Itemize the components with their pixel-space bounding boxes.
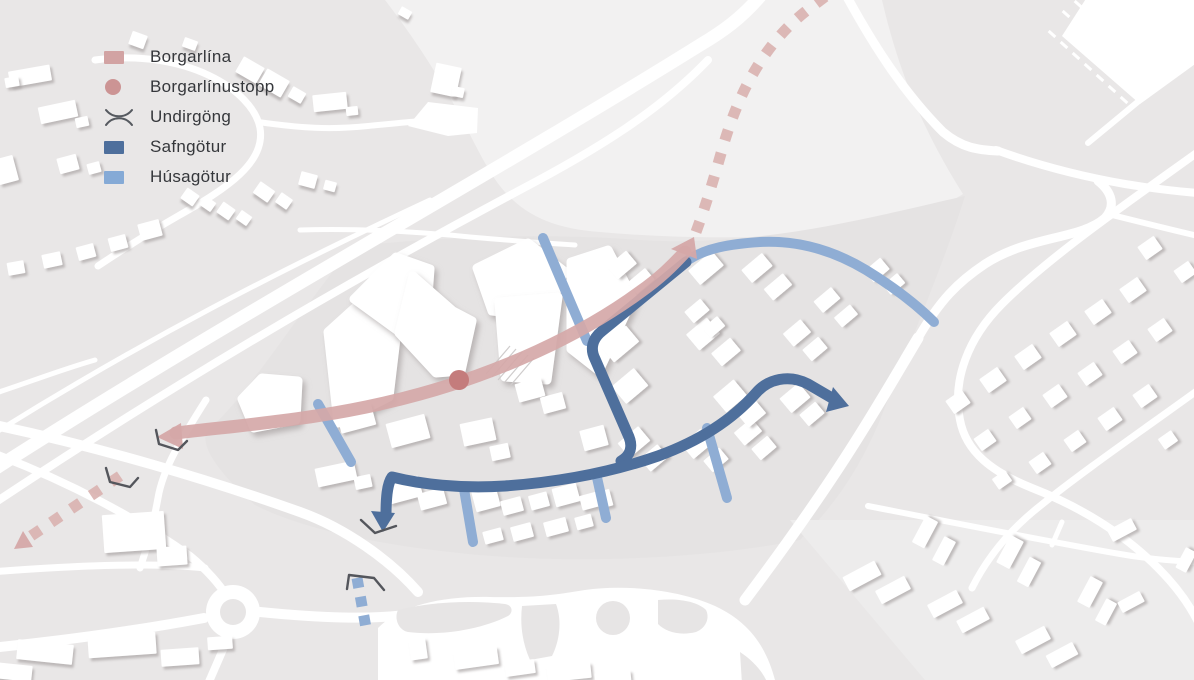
- parking-tick: [1096, 74, 1105, 82]
- building-footprint: [323, 180, 337, 193]
- tunnel-portal-curve: [106, 110, 132, 116]
- roundabout-west-island: [220, 599, 246, 625]
- building-footprint: [408, 637, 428, 660]
- east-arm: [260, 612, 415, 618]
- building-footprint: [1112, 340, 1138, 365]
- collector-street-swatch: [104, 141, 138, 154]
- building-footprint: [288, 86, 307, 104]
- parking-tick: [1120, 96, 1129, 104]
- building-footprint: [1137, 236, 1163, 261]
- building-footprint: [1014, 344, 1042, 371]
- legend-item-undirgong: Undirgöng: [104, 102, 275, 132]
- borgarlina-stop: [449, 370, 469, 390]
- building-footprint: [137, 219, 163, 241]
- building-footprint: [1042, 384, 1068, 409]
- gore-merge: [0, 360, 95, 395]
- building-footprint: [156, 545, 187, 566]
- tunnel-portal-curve: [106, 118, 132, 125]
- building-footprint: [0, 662, 33, 680]
- building-footprint: [298, 171, 318, 189]
- building-footprint: [160, 647, 199, 667]
- legend-item-borgarlinustopp: Borgarlínustopp: [104, 72, 275, 102]
- parking-tick: [1072, 52, 1081, 60]
- northeast-branch: [1108, 214, 1194, 236]
- building-footprint: [1173, 261, 1194, 284]
- building-footprint: [1077, 362, 1103, 387]
- large-parking-building: [1062, 0, 1194, 104]
- building-footprint: [1147, 318, 1173, 343]
- parking-tick: [1048, 30, 1057, 38]
- building-footprint: [312, 92, 348, 112]
- building-footprint: [1158, 430, 1179, 450]
- collector-street-swatch: [104, 141, 124, 154]
- building-footprint: [216, 201, 236, 220]
- building-footprint: [0, 155, 19, 185]
- borgarlina-line-swatch: [104, 51, 138, 64]
- parking-tick: [1074, 0, 1083, 8]
- borgarlina-stop-swatch: [104, 79, 138, 95]
- legend-item-safngotur: Safngötur: [104, 132, 275, 162]
- borgarlina-stop-swatch: [105, 79, 121, 95]
- borgarlina-line-swatch: [104, 51, 124, 64]
- residential-street-swatch: [104, 171, 124, 184]
- building-footprint: [236, 210, 253, 226]
- map-legend: BorgarlínaBorgarlínustoppUndirgöngSafngö…: [104, 42, 275, 192]
- parking-tick: [1084, 63, 1093, 71]
- legend-label-borgarlina: Borgarlína: [150, 47, 231, 67]
- building-footprint: [86, 161, 101, 175]
- legend-label-borgarlinustopp: Borgarlínustopp: [150, 77, 275, 97]
- legend-label-husagotur: Húsagötur: [150, 167, 231, 187]
- roundabout-east-island: [596, 601, 630, 635]
- building-footprint: [38, 100, 79, 125]
- building-footprint: [275, 192, 293, 210]
- building-footprint: [979, 367, 1007, 394]
- building-footprint: [945, 390, 971, 415]
- building-footprint: [7, 260, 26, 276]
- building-footprint: [75, 116, 90, 128]
- tunnel-portal-icon: [104, 107, 138, 127]
- building-footprint: [1049, 321, 1077, 348]
- nw-approach: [0, 565, 205, 572]
- building-footprint: [1084, 299, 1112, 326]
- building-footprint: [75, 243, 96, 261]
- junction-and-roundabouts: [206, 585, 775, 680]
- building-footprint: [1063, 430, 1086, 453]
- parking-tick: [1062, 10, 1071, 18]
- legend-item-husagotur: Húsagötur: [104, 162, 275, 192]
- tunnel-portal-icon: [104, 107, 134, 127]
- legend-label-safngotur: Safngötur: [150, 137, 226, 157]
- building-footprint: [41, 251, 62, 269]
- legend-item-borgarlina: Borgarlína: [104, 42, 275, 72]
- building-footprint: [1119, 277, 1147, 304]
- parking-tick: [1060, 41, 1069, 49]
- residential-street-swatch: [104, 171, 138, 184]
- building-footprint: [346, 106, 359, 116]
- building-footprint: [207, 636, 233, 651]
- parking-tick: [1108, 85, 1117, 93]
- building-footprint: [1132, 384, 1158, 409]
- building-footprint: [56, 154, 79, 175]
- traffic-island: [521, 604, 559, 660]
- building-footprint: [1008, 407, 1031, 430]
- building-footprint: [1028, 452, 1051, 475]
- road-turning-head: [408, 102, 478, 136]
- legend-label-undirgong: Undirgöng: [150, 107, 231, 127]
- building-footprint: [1097, 407, 1123, 432]
- building-footprint: [102, 511, 166, 553]
